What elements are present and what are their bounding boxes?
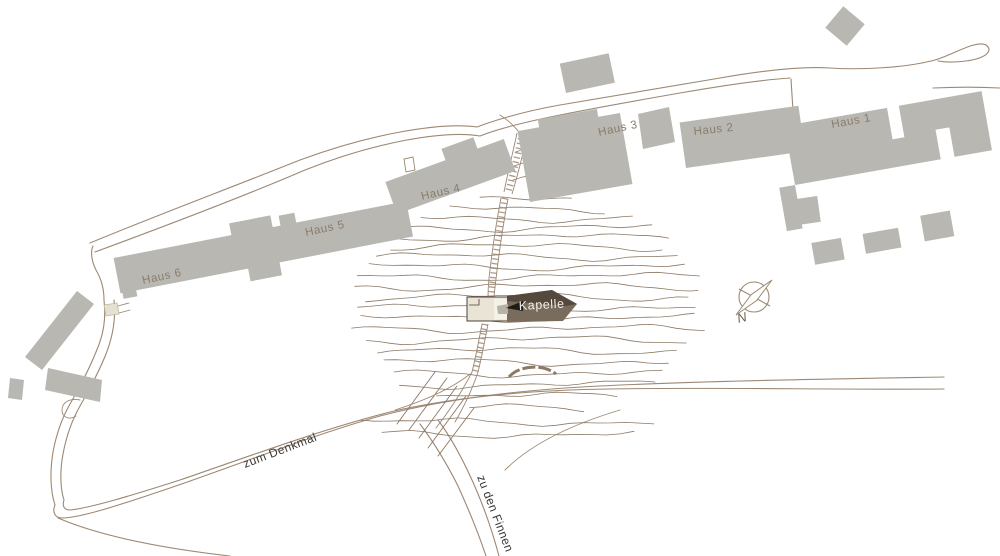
road-stub-b: [119, 310, 130, 313]
compass-rose: N: [736, 280, 772, 326]
road-east-exit: [933, 87, 1000, 88]
label-zum-denkmal: zum Denkmal: [241, 430, 319, 471]
contour-line: [352, 324, 705, 333]
footbridge-annex: [104, 303, 119, 316]
building-haus5-6: [111, 189, 415, 306]
contour-line: [405, 225, 652, 233]
contour-line: [366, 336, 686, 345]
road-south-single: [58, 518, 230, 556]
steps-hatch-fan: [397, 372, 474, 456]
site-plan: N Haus 1 Haus 2 Haus 3 Haus 4 Haus 5 Hau…: [0, 0, 1000, 556]
building-top-right-square: [825, 6, 864, 45]
label-kapelle: Kapelle: [518, 297, 565, 313]
contour-line: [450, 206, 605, 214]
contour-line: [360, 418, 654, 427]
road-gate-marker: [404, 157, 415, 172]
contour-line: [378, 348, 677, 355]
building-haus3-ne-block: [638, 107, 675, 149]
buildings: [8, 6, 1000, 402]
site-plan-svg: N Haus 1 Haus 2 Haus 3 Haus 4 Haus 5 Hau…: [0, 0, 1000, 556]
road-finnen-branch: [505, 410, 620, 470]
compass-north-label: N: [736, 309, 749, 326]
building-haus3: [516, 105, 632, 202]
building-haus1: [768, 89, 1000, 268]
retaining-wall-arc: [509, 367, 556, 377]
road-promenade-lower: [63, 388, 944, 510]
contour-line: [391, 244, 663, 252]
contour-line: [385, 234, 668, 241]
contour-line: [394, 370, 662, 378]
road-stairs-connector: [500, 115, 519, 132]
building-left-l: [8, 291, 102, 402]
road-west-bend: [92, 246, 104, 300]
building-top-small: [560, 53, 615, 93]
contour-line: [369, 264, 684, 271]
road-promenade-upper: [54, 377, 944, 518]
contour-line: [470, 404, 584, 412]
contour-line: [377, 253, 678, 262]
contour-line: [384, 359, 668, 367]
road-stub-a: [118, 303, 129, 306]
contour-line: [421, 216, 633, 223]
contour-line: [355, 283, 698, 292]
contour-line: [357, 272, 699, 280]
